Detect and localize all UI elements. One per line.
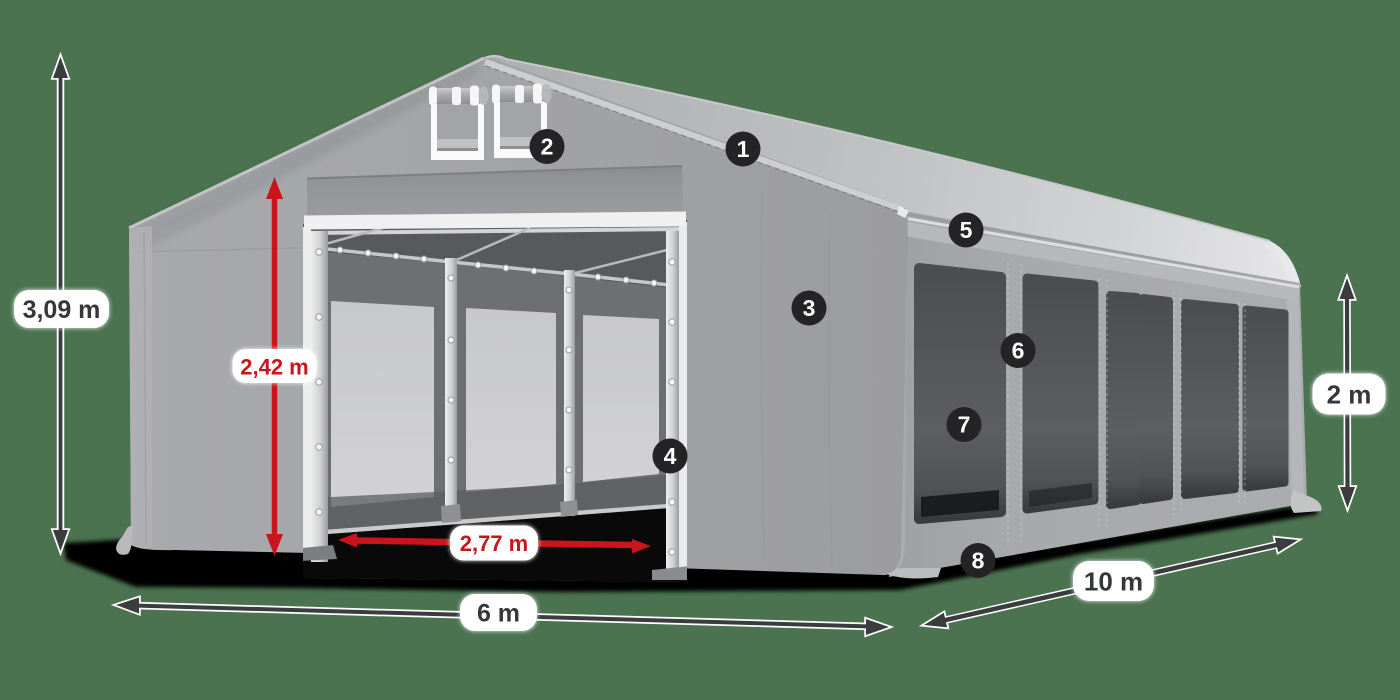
- svg-text:6: 6: [1012, 338, 1025, 364]
- svg-text:1: 1: [737, 136, 750, 162]
- svg-text:4: 4: [664, 443, 677, 469]
- svg-text:2,77 m: 2,77 m: [460, 531, 529, 556]
- svg-text:2: 2: [541, 134, 554, 160]
- svg-text:7: 7: [958, 412, 971, 438]
- svg-text:5: 5: [960, 217, 973, 243]
- svg-text:10 m: 10 m: [1084, 567, 1143, 597]
- svg-text:3,09 m: 3,09 m: [23, 296, 101, 324]
- svg-text:6 m: 6 m: [477, 600, 520, 628]
- svg-text:8: 8: [972, 548, 985, 574]
- svg-text:2,42 m: 2,42 m: [240, 355, 309, 380]
- svg-text:2 m: 2 m: [1327, 380, 1372, 410]
- svg-text:3: 3: [803, 295, 816, 321]
